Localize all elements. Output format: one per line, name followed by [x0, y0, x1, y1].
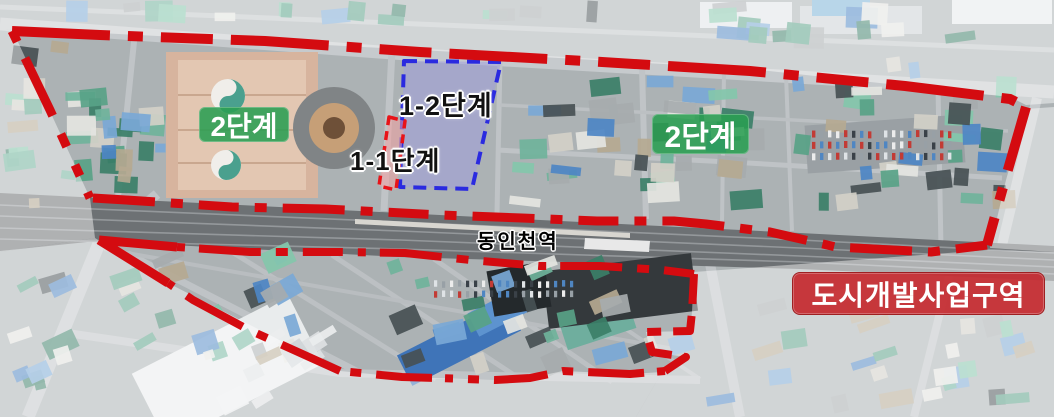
- map-canvas: [0, 0, 1054, 417]
- phase-2-label-right: 2단계: [652, 114, 749, 154]
- station-label: 동인천역: [477, 225, 559, 254]
- phase-1-2-label: 1-2단계: [399, 84, 493, 123]
- phase-1-1-label: 1-1단계: [350, 141, 440, 178]
- phase-2-label-left: 2단계: [199, 107, 289, 142]
- district-label: 도시개발사업구역: [792, 272, 1045, 315]
- satellite-map: 2단계 2단계 1-2단계 1-1단계 동인천역 도시개발사업구역: [0, 0, 1054, 417]
